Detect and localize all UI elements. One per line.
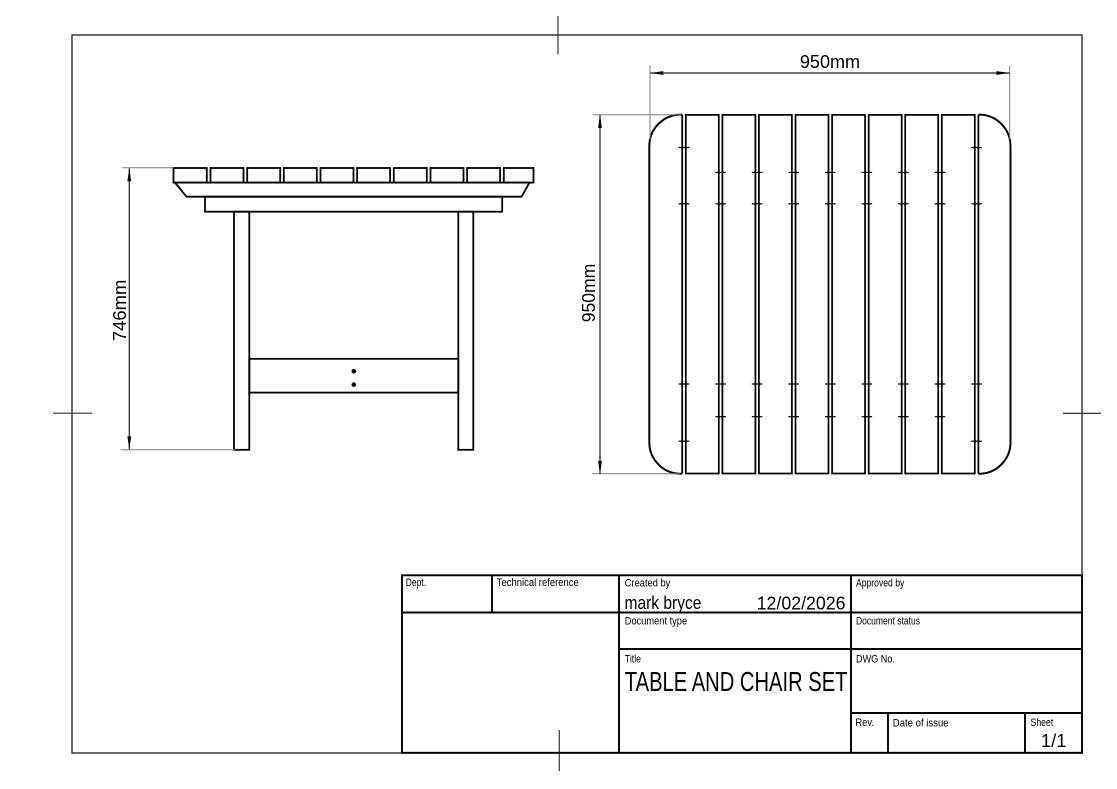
svg-text:746mm: 746mm bbox=[109, 280, 130, 342]
svg-text:TABLE AND CHAIR SET: TABLE AND CHAIR SET bbox=[625, 666, 848, 697]
svg-text:950mm: 950mm bbox=[578, 264, 599, 323]
svg-text:Document status: Document status bbox=[856, 616, 920, 628]
svg-text:Sheet: Sheet bbox=[1031, 717, 1054, 729]
svg-text:Dept.: Dept. bbox=[406, 577, 426, 589]
svg-text:Approved by: Approved by bbox=[856, 578, 905, 590]
svg-text:Title: Title bbox=[625, 653, 641, 665]
svg-text:DWG No.: DWG No. bbox=[856, 653, 895, 665]
svg-text:Date of issue: Date of issue bbox=[893, 718, 949, 730]
svg-text:Technical reference: Technical reference bbox=[497, 577, 579, 589]
svg-text:Document type: Document type bbox=[625, 616, 687, 628]
svg-text:Rev.: Rev. bbox=[855, 717, 874, 729]
svg-text:12/02/2026: 12/02/2026 bbox=[757, 593, 846, 614]
svg-text:mark bryce: mark bryce bbox=[625, 592, 702, 613]
svg-text:950mm: 950mm bbox=[800, 51, 860, 72]
svg-text:Created by: Created by bbox=[625, 578, 671, 590]
svg-text:1/1: 1/1 bbox=[1041, 730, 1067, 751]
